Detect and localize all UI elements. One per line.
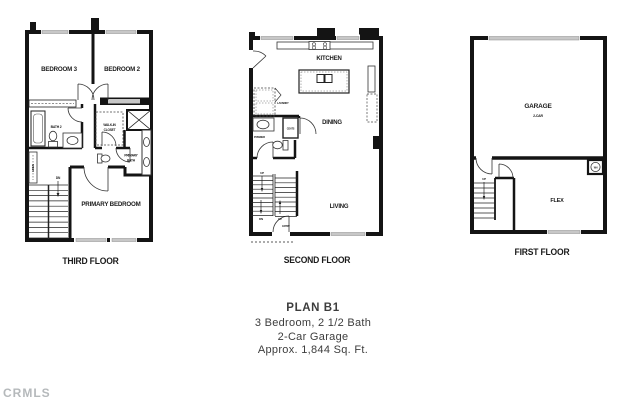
crmls-watermark: CRMLS — [3, 386, 51, 400]
room-label-bedroom3: BEDROOM 3 — [41, 66, 77, 73]
floor-third: BEDROOM 3 BEDROOM 2 BATH 2 WALK-IN CLOSE… — [18, 8, 163, 266]
room-label-laundry: LAUNDRY — [277, 101, 289, 105]
second-floor-walls — [249, 28, 381, 238]
room-label-entry: ENTRY — [282, 225, 290, 228]
room-label-walkin-line2: CLOSET — [104, 128, 116, 132]
room-label-walkin-line1: WALK-IN — [103, 123, 116, 127]
first-floor-svg: GARAGE 2-CAR UP WH FLEX — [462, 30, 622, 238]
stair-label-up-top: UP — [260, 171, 264, 175]
plan-caption: PLAN B1 3 Bedroom, 2 1/2 Bath 2-Car Gara… — [133, 302, 493, 358]
plan-title: PLAN B1 — [133, 302, 493, 314]
floorplan-sheet: BEDROOM 3 BEDROOM 2 BATH 2 WALK-IN CLOSE… — [0, 0, 640, 416]
room-label-garage: GARAGE — [524, 103, 552, 110]
floor-label-third: THIRD FLOOR — [22, 256, 160, 266]
fixture-label-wh: WH — [594, 166, 598, 169]
room-label-flex: FLEX — [550, 198, 564, 204]
plan-subtitle-sqft: Approx. 1,844 Sq. Ft. — [133, 344, 493, 358]
second-floor-svg: KITCHEN LAUNDRY COATS POWDER DINING LIVI… — [233, 18, 401, 244]
floor-second: KITCHEN LAUNDRY COATS POWDER DINING LIVI… — [233, 18, 401, 265]
floor-first: GARAGE 2-CAR UP WH FLEX FIRST FLOOR — [462, 30, 622, 257]
stair-label-up-first: UP — [482, 177, 486, 181]
third-floor-svg: BEDROOM 3 BEDROOM 2 BATH 2 WALK-IN CLOSE… — [18, 8, 163, 248]
plan-subtitle-bed-bath: 3 Bedroom, 2 1/2 Bath — [133, 317, 493, 331]
floor-label-second: SECOND FLOOR — [237, 255, 397, 265]
room-label-bath2: BATH 2 — [51, 125, 62, 129]
room-label-kitchen: KITCHEN — [316, 56, 341, 62]
room-label-living: LIVING — [330, 204, 349, 210]
room-label-primary-bedroom: PRIMARY BEDROOM — [81, 201, 140, 208]
room-label-primary-bath-line1: PRIMARY — [124, 154, 138, 158]
first-floor-walls — [472, 35, 605, 236]
plan-subtitle-garage: 2-Car Garage — [133, 331, 493, 345]
room-label-powder: POWDER — [254, 135, 265, 139]
room-label-bedroom2: BEDROOM 2 — [104, 66, 140, 73]
room-label-garage-type: 2-CAR — [533, 114, 543, 118]
room-label-primary-bath-line2: BATH — [127, 159, 136, 163]
room-label-linen: LINEN — [31, 164, 35, 172]
room-label-dining: DINING — [322, 120, 342, 126]
floor-label-first: FIRST FLOOR — [466, 247, 618, 257]
room-label-coats: COATS — [287, 128, 295, 131]
stair-label-up-bottom: UP — [278, 217, 282, 221]
stair-label-dn-second: DN — [259, 217, 263, 221]
